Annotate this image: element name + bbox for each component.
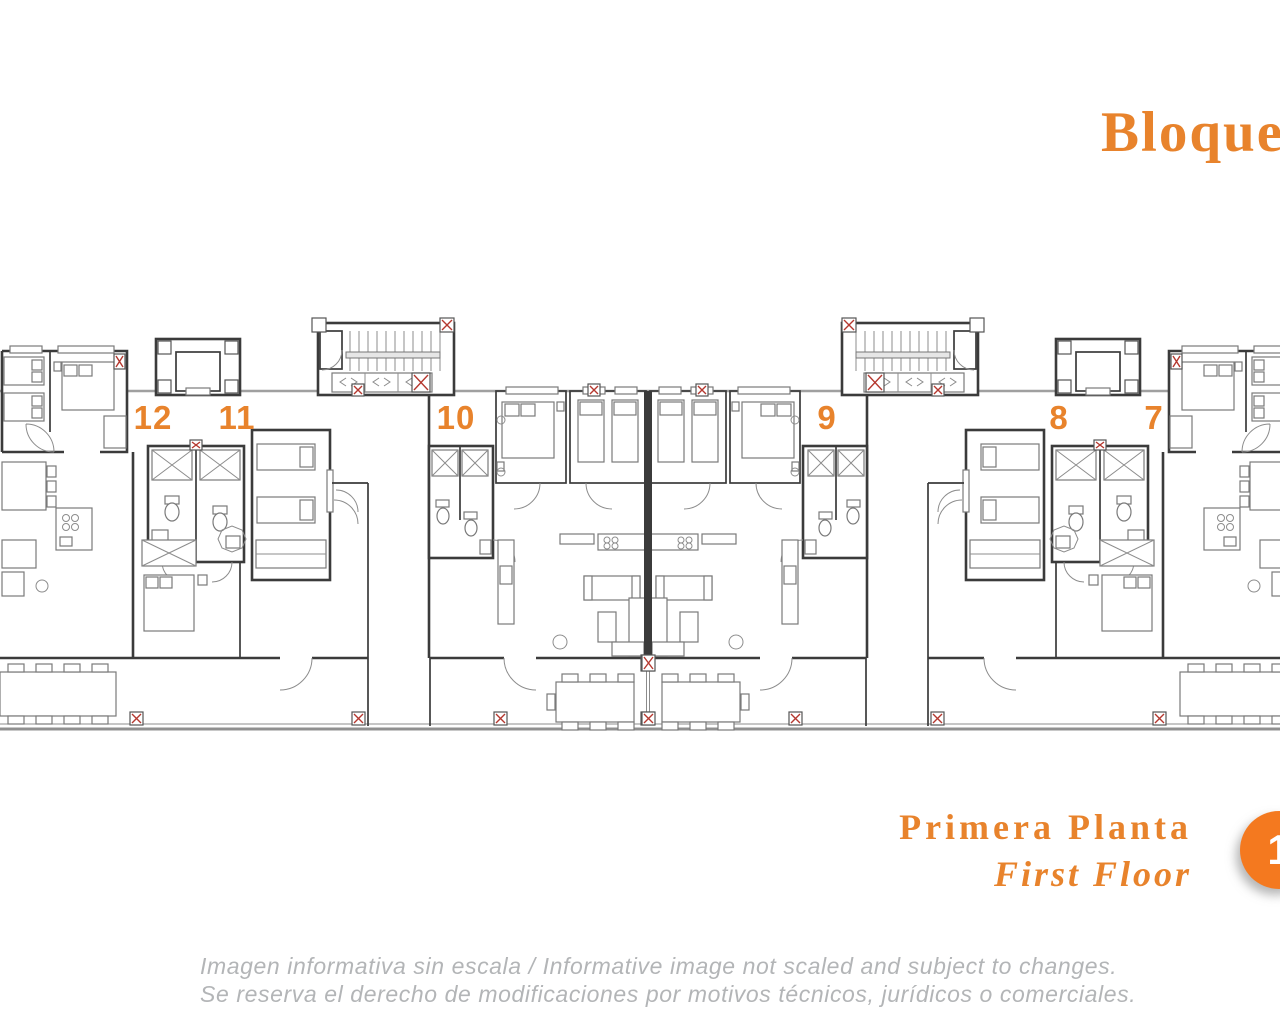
corner-apartment: [2, 346, 127, 452]
floor-plan-drawing: [0, 300, 1280, 750]
stair-core: [312, 318, 454, 395]
floor-plan-page: { "title": { "text": "Bloque", "color": …: [0, 0, 1280, 1024]
plan-right-half: [642, 318, 1280, 730]
unit-label-12: 12: [134, 399, 173, 437]
unit-label-7: 7: [1144, 399, 1163, 437]
floor-name-english: First Floor: [899, 853, 1192, 895]
floor-number: 1: [1267, 826, 1280, 874]
unit-label-8: 8: [1049, 399, 1068, 437]
plan-left-half: [0, 318, 654, 730]
unit-label-11: 11: [219, 399, 256, 437]
unit-label-10: 10: [437, 399, 476, 437]
unit-label-9: 9: [817, 399, 836, 437]
disclaimer: Imagen informativa sin escala / Informat…: [200, 952, 1136, 1008]
disclaimer-line-2: Se reserva el derecho de modificaciones …: [200, 980, 1136, 1008]
floor-number-badge: 1: [1240, 811, 1280, 889]
disclaimer-line-1: Imagen informativa sin escala / Informat…: [200, 952, 1136, 980]
center-unit: [429, 387, 649, 724]
floor-name-spanish: Primera Planta: [899, 806, 1192, 848]
bedroom-unit-11: [252, 430, 358, 580]
elevator-core: [156, 339, 240, 395]
page-title: Bloque: [1101, 100, 1280, 165]
floor-caption: Primera Planta First Floor: [899, 806, 1192, 895]
